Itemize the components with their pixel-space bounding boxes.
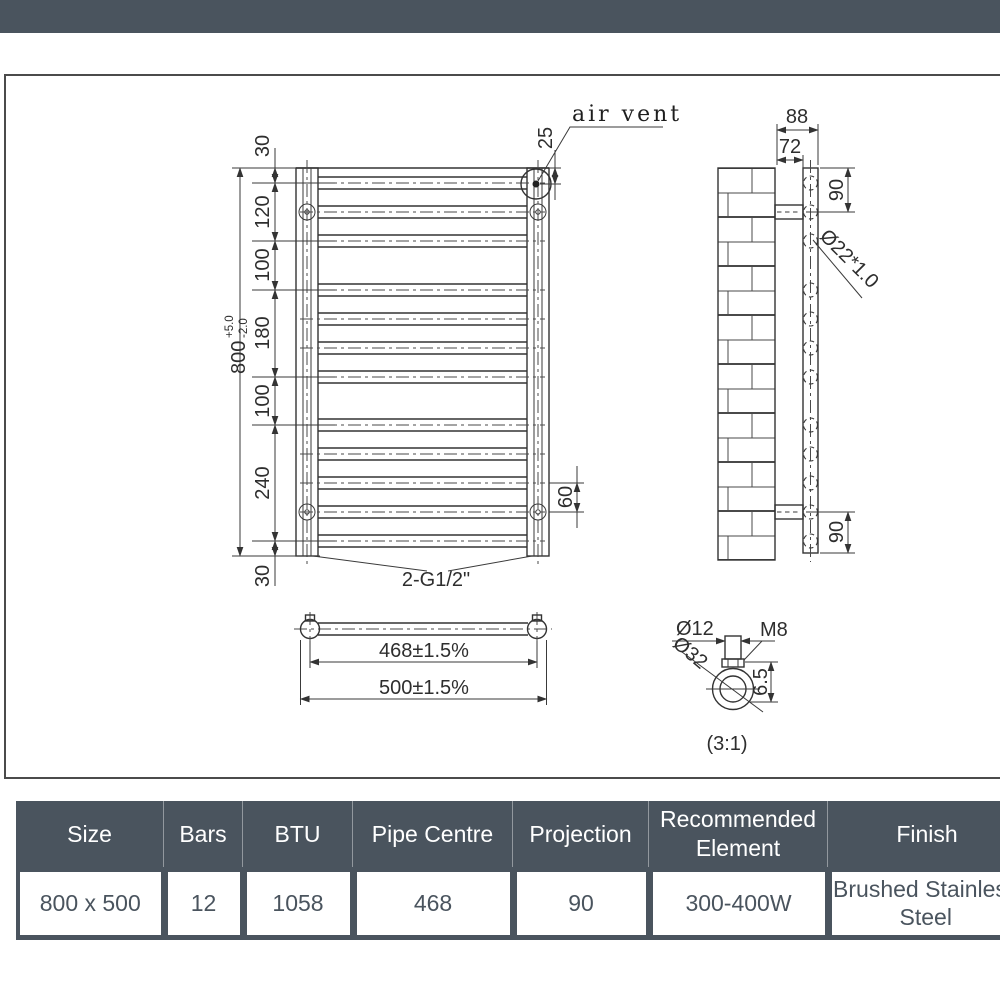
col-header-bars: Bars [164, 801, 243, 867]
dim-nut-height: 6.5 [745, 662, 778, 702]
wall-bracket-bottom [775, 505, 803, 519]
svg-text:25: 25 [535, 127, 557, 149]
value-finish: Brushed Stainless Steel [832, 872, 1000, 935]
detail-scale-label: (3:1) [706, 733, 747, 755]
bar-9 [300, 448, 545, 460]
bar-11 [300, 506, 545, 518]
dim-90-bottom: 90 [806, 512, 855, 553]
svg-text:90: 90 [826, 521, 848, 543]
svg-text:60: 60 [555, 486, 577, 508]
bar-6 [300, 342, 545, 354]
col-header-pipe-centre: Pipe Centre [353, 801, 513, 867]
svg-text:100: 100 [252, 248, 274, 281]
bottom-connections: 2-G1/2" [313, 556, 532, 591]
value-size: 800 x 500 [20, 872, 161, 935]
col-header-size: Size [16, 801, 164, 867]
dim-60: 60 [549, 466, 584, 528]
thread-label: M8 [744, 619, 788, 660]
svg-text:120: 120 [252, 195, 274, 228]
brick-wall [718, 168, 775, 560]
svg-text:30: 30 [252, 565, 274, 587]
bar-1 [300, 177, 545, 189]
svg-text:100: 100 [252, 384, 274, 417]
value-btu: 1058 [247, 872, 350, 935]
col-header-projection: Projection [513, 801, 649, 867]
svg-text:90: 90 [826, 179, 848, 201]
dim-overall-height: 800 +5.0 -2.0 [224, 168, 250, 556]
front-view: air vent 25 [224, 102, 682, 591]
detail-view: Ø12 M8 Ø32 6.5 (3:1) [668, 618, 787, 755]
bar-10 [300, 477, 545, 489]
svg-text:800: 800 [228, 341, 250, 374]
svg-text:-2.0: -2.0 [238, 318, 250, 338]
bar-2 [300, 206, 545, 218]
svg-text:180: 180 [252, 316, 274, 349]
col-header-finish: Finish [828, 801, 1000, 867]
bar-12 [300, 535, 545, 547]
value-bars: 12 [168, 872, 240, 935]
svg-text:500±1.5%: 500±1.5% [379, 677, 469, 699]
dim-72: 72 [777, 136, 803, 202]
svg-text:2-G1/2": 2-G1/2" [402, 569, 470, 591]
svg-text:6.5: 6.5 [750, 668, 772, 696]
svg-text:M8: M8 [760, 619, 788, 641]
spec-table: Size Bars BTU Pipe Centre Projection Rec… [16, 801, 1000, 940]
bar-5 [300, 313, 545, 325]
value-recommended-element: 300-400W [653, 872, 825, 935]
air-vent-label: air vent [572, 102, 682, 127]
dim-pipe-centres: 468±1.5% [310, 640, 537, 668]
svg-text:88: 88 [786, 106, 808, 128]
top-view: 468±1.5% 500±1.5% [294, 612, 552, 705]
col-header-recommended-element: Recommended Element [649, 801, 828, 867]
col-header-btu: BTU [243, 801, 353, 867]
value-projection: 90 [517, 872, 646, 935]
svg-text:240: 240 [252, 466, 274, 499]
bar-3 [300, 235, 545, 247]
bar-7 [300, 371, 545, 383]
bracket-circles [299, 204, 546, 520]
tube-spec: Ø22*1.0 [813, 225, 883, 298]
svg-text:468±1.5%: 468±1.5% [379, 640, 469, 662]
radiator-spec-sheet: { "front_view": { "dim_top_gap": "30", "… [0, 0, 1000, 1000]
side-view: 88 72 90 90 Ø22*1.0 [718, 106, 883, 562]
bar-4 [300, 284, 545, 296]
bar-8 [300, 419, 545, 431]
svg-text:30: 30 [252, 135, 274, 157]
svg-text:72: 72 [779, 136, 801, 158]
value-pipe-centre: 468 [357, 872, 510, 935]
svg-text:+5.0: +5.0 [224, 315, 236, 338]
wall-bracket-top [775, 205, 803, 219]
